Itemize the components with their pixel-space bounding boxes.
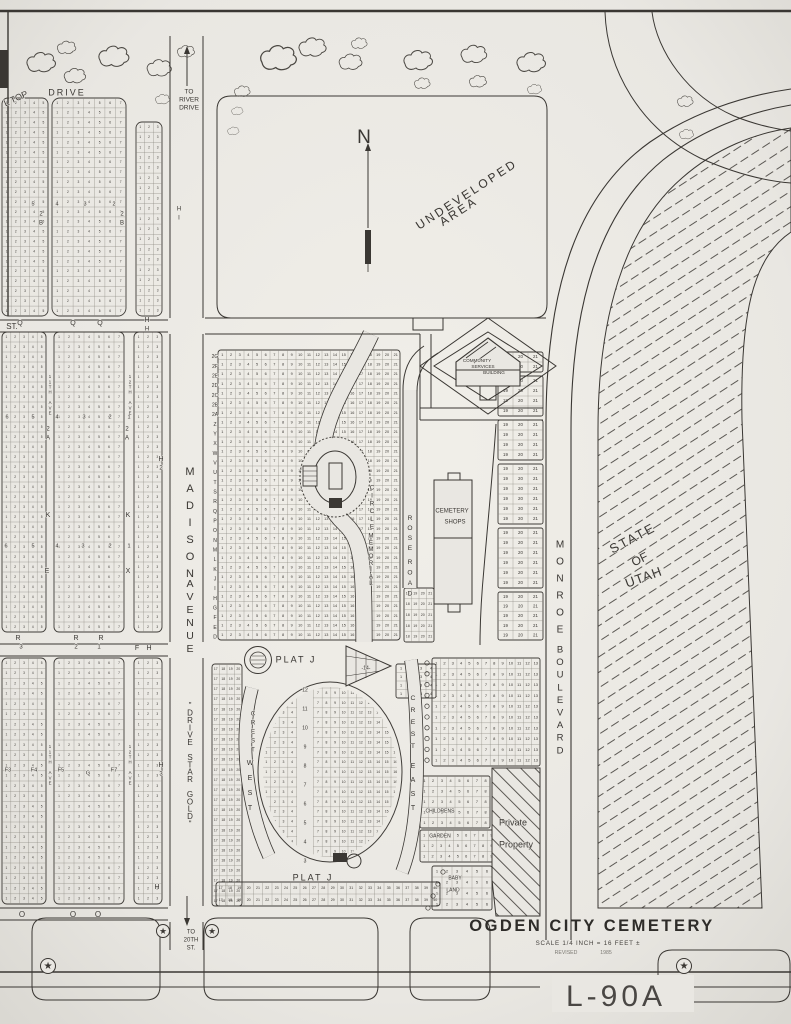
- plot-number: 3: [156, 445, 158, 449]
- plot-number: 4: [32, 525, 34, 529]
- plot-number: 21: [256, 886, 260, 890]
- plot-number: 3: [78, 150, 80, 154]
- plot-number: 7: [273, 392, 275, 396]
- plot-number: 34: [377, 886, 381, 890]
- plot-number: 1: [58, 671, 60, 675]
- plot-number: 5: [99, 160, 101, 164]
- plot-number: 21: [394, 411, 398, 415]
- revised-year: 1985: [600, 950, 612, 956]
- plot-number: 15: [385, 810, 389, 814]
- plot-number: 6: [108, 774, 110, 778]
- plot-number: 4: [33, 309, 35, 313]
- plot-number: 2: [230, 488, 232, 492]
- plot-number: 7: [118, 545, 120, 549]
- plot-number: 1: [138, 345, 140, 349]
- plot-number: 2: [15, 249, 17, 253]
- plot-number: 2: [230, 421, 232, 425]
- plot-number: 3: [23, 515, 25, 519]
- plot-number: 1: [6, 445, 8, 449]
- plot-number: 2: [67, 140, 69, 144]
- plot-number: 2: [15, 190, 17, 194]
- street-name-letter: E: [186, 604, 193, 616]
- plot-number: 3: [23, 825, 25, 829]
- plot-number: 7: [118, 876, 120, 880]
- plot-number: 6: [108, 595, 110, 599]
- plot-number: 13: [324, 546, 328, 550]
- plot-number: 39: [424, 886, 428, 890]
- plot-number: 4: [33, 131, 35, 135]
- plot-number: 7: [118, 435, 120, 439]
- plot-number: 2: [274, 730, 276, 734]
- plot-number: 1: [56, 101, 58, 105]
- plot-number: 2: [147, 835, 149, 839]
- plot-row-label: 2A: [212, 412, 219, 418]
- plot-number: 3: [156, 335, 158, 339]
- map-label: DRIVE: [179, 105, 200, 112]
- plot-number: 2: [68, 845, 70, 849]
- plot-number: 1: [138, 671, 140, 675]
- plot-number: 20: [385, 508, 389, 512]
- plot-number: 3: [283, 770, 285, 774]
- map-label: PLAT J: [276, 654, 317, 664]
- plot-number: 19: [376, 459, 380, 463]
- plot-number: 3: [78, 465, 80, 469]
- plot-number: 20: [247, 898, 251, 902]
- plot-number: 3: [78, 671, 80, 675]
- plot-number: 4: [88, 269, 90, 273]
- plot-number: 5: [99, 249, 101, 253]
- plot-number: 13: [368, 740, 372, 744]
- plot-number: 4: [88, 465, 90, 469]
- plot-number: 18: [221, 768, 225, 772]
- map-label: O: [19, 910, 25, 919]
- plot-number: 5: [98, 804, 100, 808]
- plot-number: 5: [41, 445, 43, 449]
- plot-row-label: I: [214, 586, 215, 592]
- plot-number: 6: [108, 395, 110, 399]
- plot-number: 19: [376, 401, 380, 405]
- plot-number: 6: [467, 800, 469, 804]
- plot-number: 3: [23, 465, 25, 469]
- plot-number: 11: [351, 839, 355, 843]
- plot-number: 10: [298, 527, 302, 531]
- plot-number: 4: [32, 804, 34, 808]
- plot-number: 2: [230, 546, 232, 550]
- plot-number: 15: [342, 575, 346, 579]
- plot-number: 1: [6, 515, 8, 519]
- plot-number: 3: [78, 425, 80, 429]
- plot-number: 20: [518, 613, 523, 618]
- plot-number: 5: [256, 624, 258, 628]
- plot-number: 2: [147, 405, 149, 409]
- plot-number: 21: [394, 498, 398, 502]
- plot-number: 6: [108, 505, 110, 509]
- plot-number: 5: [41, 455, 43, 459]
- plot-number: 1: [139, 288, 141, 292]
- plot-number: 12: [359, 711, 363, 715]
- plot-number: 3: [156, 692, 158, 696]
- plot-number: 21: [533, 466, 538, 471]
- plot-number: 2: [147, 661, 149, 665]
- plot-number: 9: [334, 760, 336, 764]
- plot-number: 4: [33, 269, 35, 273]
- plot-number: 5: [41, 575, 43, 579]
- plot-number: 4: [88, 121, 90, 125]
- plot-number: 6: [108, 555, 110, 559]
- plot-number: 1: [138, 835, 140, 839]
- plot-number: 13: [368, 819, 372, 823]
- plot-number: 2: [147, 595, 149, 599]
- plot-number: 1: [56, 160, 58, 164]
- plot-number: 4: [32, 465, 34, 469]
- plot-number: 5: [41, 485, 43, 489]
- plot-number: 7: [118, 455, 120, 459]
- plot-number: 9: [291, 498, 293, 502]
- plot-number: 18: [221, 707, 225, 711]
- plot-number: 10: [342, 730, 346, 734]
- plot-number: 6: [108, 897, 110, 901]
- plot-number: 10: [298, 575, 302, 579]
- plot-number: 2: [14, 625, 16, 629]
- plot-number: 7: [120, 259, 122, 263]
- plot-number: 2: [67, 200, 69, 204]
- plot-number: 2: [230, 353, 232, 357]
- street-name-letter: C: [411, 695, 416, 702]
- plot-number: 3: [78, 763, 80, 767]
- plot-number: 10: [298, 624, 302, 628]
- plot-number: 9: [334, 701, 336, 705]
- plot-number: 3: [78, 299, 80, 303]
- plot-number: 3: [23, 485, 25, 489]
- plot-number: 16: [350, 575, 354, 579]
- plot-number: 10: [342, 711, 346, 715]
- map-label: F4: [31, 767, 37, 773]
- plot-number: 5: [256, 566, 258, 570]
- plot-number: 4: [291, 770, 293, 774]
- plot-number: 3: [239, 363, 241, 367]
- plot-number: 4: [88, 856, 90, 860]
- plot-number: 10: [298, 353, 302, 357]
- plot-number: 20: [518, 486, 523, 491]
- plot-number: 2: [14, 365, 16, 369]
- plot-number: 18: [221, 727, 225, 731]
- plot-number: 2: [68, 545, 70, 549]
- plot-number: 5: [256, 459, 258, 463]
- plot-number: 9: [291, 556, 293, 560]
- plot-number: 4: [88, 395, 90, 399]
- map-label: 20TH: [184, 938, 199, 944]
- plot-number: 10: [298, 517, 302, 521]
- plot-number: 21: [394, 450, 398, 454]
- plot-number: 7: [317, 770, 319, 774]
- plot-number: 2: [147, 585, 149, 589]
- plot-number: 5: [43, 131, 45, 135]
- plot-number: 3: [157, 156, 159, 160]
- plot-number: 6: [265, 430, 267, 434]
- plot-number: 5: [41, 615, 43, 619]
- plot-number: 3: [156, 465, 158, 469]
- plot-number: 5: [41, 886, 43, 890]
- plot-number: 3: [24, 279, 26, 283]
- plot-number: 11: [307, 382, 311, 386]
- plot-number: 27: [312, 898, 316, 902]
- map-label: X: [126, 568, 131, 575]
- plot-number: 21: [428, 635, 432, 639]
- plot-number: 1: [58, 495, 60, 499]
- plot-number: 7: [273, 353, 275, 357]
- plot-number: 3: [156, 525, 158, 529]
- plot-number: 8: [282, 517, 284, 521]
- plot-number: 19: [376, 537, 380, 541]
- plot-number: 12: [316, 595, 320, 599]
- plot-number: 8: [326, 691, 328, 695]
- plot-number: 3: [23, 897, 25, 901]
- plot-number: 2: [147, 455, 149, 459]
- plot-number: 17: [359, 411, 363, 415]
- plot-number: 20: [518, 632, 523, 637]
- plot-number: 3: [78, 345, 80, 349]
- plot-number: 11: [307, 566, 311, 570]
- plot-row-label: 2E: [212, 373, 219, 379]
- plot-number: 15: [342, 585, 346, 589]
- plot-number: 7: [273, 430, 275, 434]
- plot-number: 5: [43, 269, 45, 273]
- plot-number: 19: [413, 635, 417, 639]
- plot-number: 3: [23, 743, 25, 747]
- plot-number: 6: [109, 121, 111, 125]
- plot-number: 3: [78, 375, 80, 379]
- plot-number: 11: [307, 421, 311, 425]
- plot-number: 6: [265, 450, 267, 454]
- plot-number: 20: [518, 398, 523, 403]
- plot-number: 4: [247, 353, 249, 357]
- plot-number: 18: [368, 372, 372, 376]
- map-label: 2: [112, 201, 115, 207]
- street-name-letter: S: [186, 534, 193, 546]
- plot-number: 3: [23, 455, 25, 459]
- plot-number: 7: [120, 111, 122, 115]
- plot-number: 1: [58, 465, 60, 469]
- plot-number: 8: [282, 537, 284, 541]
- plot-number: 5: [99, 210, 101, 214]
- plot-number: 8: [282, 575, 284, 579]
- plot-number: 6: [108, 425, 110, 429]
- plot-number: 4: [32, 886, 34, 890]
- plot-number: 13: [368, 711, 372, 715]
- plot-number: 2: [68, 815, 70, 819]
- plot-number: 6: [265, 575, 267, 579]
- plot-number: 2: [147, 774, 149, 778]
- plot-number: 3: [78, 435, 80, 439]
- plot-number: 3: [156, 605, 158, 609]
- plot-number: 14: [376, 740, 380, 744]
- burial-plot-grid: 1718192017181920171819201718192017181920…: [212, 664, 242, 906]
- plot-number: 1: [6, 743, 8, 747]
- plot-number: 5: [41, 774, 43, 778]
- plot-number: 7: [120, 180, 122, 184]
- plot-number: 2: [68, 794, 70, 798]
- plot-number: 3: [283, 730, 285, 734]
- plot-number: 3: [239, 575, 241, 579]
- plot-number: 21: [533, 476, 538, 481]
- plot-number: 14: [376, 720, 380, 724]
- plot-number: 20: [385, 566, 389, 570]
- plot-number: 7: [317, 839, 319, 843]
- plot-number: 1: [56, 299, 58, 303]
- plot-number: 1: [58, 815, 60, 819]
- plot-number: 7: [273, 633, 275, 637]
- plot-number: 4: [32, 495, 34, 499]
- plot-number: 11: [307, 411, 311, 415]
- map-label: GARDEN: [429, 833, 451, 839]
- plot-number: 1: [138, 535, 140, 539]
- plot-number: 3: [156, 712, 158, 716]
- plot-number: 11: [351, 750, 355, 754]
- plot-number: 7: [273, 585, 275, 589]
- plot-number: 5: [256, 488, 258, 492]
- plot-number: 18: [221, 798, 225, 802]
- plot-number: 1: [221, 508, 223, 512]
- plot-number: 2: [432, 779, 434, 783]
- plot-number: 20: [236, 848, 240, 852]
- plot-number: 3: [78, 415, 80, 419]
- plot-number: 1: [58, 475, 60, 479]
- plot-number: 20: [385, 575, 389, 579]
- street-name-letter: N: [186, 617, 194, 629]
- oval-row-number: 12: [302, 687, 308, 693]
- plot-number: 21: [256, 898, 260, 902]
- plot-number: 1: [221, 411, 223, 415]
- plot-number: 2: [14, 733, 16, 737]
- plot-number: 13: [324, 604, 328, 608]
- plot-number: 2: [230, 392, 232, 396]
- plot-number: 3: [283, 810, 285, 814]
- plot-number: 19: [503, 604, 508, 609]
- plot-number: 1: [138, 375, 140, 379]
- plot-number: 11: [307, 537, 311, 541]
- plot-number: 1: [58, 712, 60, 716]
- plot-number: 2: [14, 395, 16, 399]
- plot-number: 17: [214, 869, 218, 873]
- plot-number: 5: [43, 279, 45, 283]
- plot-number: 12: [525, 725, 530, 730]
- plot-number: 20: [236, 858, 240, 862]
- plot-number: 11: [307, 556, 311, 560]
- plot-number: 17: [214, 687, 218, 691]
- plot-number: 3: [78, 692, 80, 696]
- plot-number: 2: [15, 299, 17, 303]
- plot-number: 5: [43, 289, 45, 293]
- plot-number: 13: [534, 725, 539, 730]
- plot-number: 38: [415, 886, 419, 890]
- plot-number: 5: [98, 712, 100, 716]
- plot-number: 4: [33, 180, 35, 184]
- plot-number: 3: [239, 508, 241, 512]
- plot-number: 4: [32, 435, 34, 439]
- street-name-letter: L: [557, 682, 562, 693]
- plot-number: 9: [291, 537, 293, 541]
- plot-number: 1: [56, 111, 58, 115]
- star-icon: ★: [208, 926, 216, 936]
- plot-number: 2: [68, 615, 70, 619]
- plot-number: 4: [88, 289, 90, 293]
- plot-number: 21: [428, 591, 432, 595]
- plot-number: 5: [41, 475, 43, 479]
- plot-number: 1: [139, 176, 141, 180]
- plot-number: 5: [41, 545, 43, 549]
- street-name-letter: A: [408, 580, 413, 587]
- plot-number: 6: [108, 712, 110, 716]
- plot-number: 4: [88, 475, 90, 479]
- plot-number: 12: [316, 363, 320, 367]
- plot-number: 19: [503, 560, 508, 565]
- street-name-letter: H: [48, 390, 51, 395]
- plot-number: 14: [333, 595, 337, 599]
- plot-number: 2: [15, 220, 17, 224]
- plot-number: 7: [118, 555, 120, 559]
- plot-number: 12: [525, 758, 530, 763]
- plot-number: 3: [157, 227, 159, 231]
- plot-number: 2: [230, 469, 232, 473]
- plot-number: 3: [78, 712, 80, 716]
- plot-number: 13: [324, 566, 328, 570]
- plot-number: 4: [247, 459, 249, 463]
- plot-number: 4: [88, 595, 90, 599]
- plot-number: 19: [376, 556, 380, 560]
- plot-number: 2: [68, 385, 70, 389]
- plot-number: 5: [99, 269, 101, 273]
- plot-number: 2: [68, 702, 70, 706]
- plot-number: 4: [33, 121, 35, 125]
- plot-number: 14: [333, 585, 337, 589]
- plot-number: 6: [467, 810, 469, 814]
- plot-number: 1: [139, 156, 141, 160]
- plot-number: 6: [108, 615, 110, 619]
- plot-number: 3: [78, 835, 80, 839]
- plot-number: 6: [108, 702, 110, 706]
- plot-number: 17: [359, 508, 363, 512]
- plot-number: 1: [221, 488, 223, 492]
- plot-number: 6: [265, 440, 267, 444]
- plot-number: 21: [533, 516, 538, 521]
- plot-number: 3: [239, 614, 241, 618]
- plot-number: 19: [229, 848, 233, 852]
- street-name-letter: D: [408, 590, 413, 597]
- plot-number: 1: [221, 624, 223, 628]
- plot-number: 7: [120, 150, 122, 154]
- map-label: A: [46, 436, 50, 442]
- plot-number: 10: [298, 392, 302, 396]
- plot-number: 7: [118, 535, 120, 539]
- plot-number: 4: [32, 733, 34, 737]
- street-name-letter: T: [411, 805, 416, 812]
- plot-number: 7: [118, 495, 120, 499]
- plot-number: 4: [88, 415, 90, 419]
- plot-number: 19: [376, 479, 380, 483]
- plot-number: 4: [32, 753, 34, 757]
- map-label: CEMETERY: [435, 509, 468, 515]
- plot-number: 9: [291, 614, 293, 618]
- plot-number: 1: [56, 131, 58, 135]
- plot-number: 1: [58, 445, 60, 449]
- plot-number: 35: [387, 886, 391, 890]
- plot-number: 4: [291, 711, 293, 715]
- plot-number: 6: [109, 279, 111, 283]
- plot-number: 10: [509, 682, 514, 687]
- plot-number: 13: [368, 730, 372, 734]
- plot-number: 5: [43, 309, 45, 313]
- plot-number: 4: [247, 546, 249, 550]
